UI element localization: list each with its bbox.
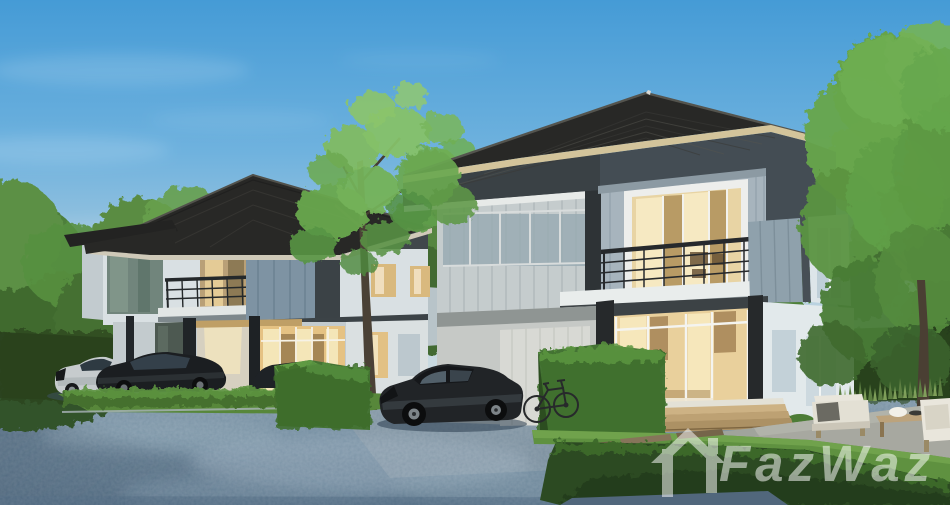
svg-text:FazWaz: FazWaz	[719, 435, 935, 492]
